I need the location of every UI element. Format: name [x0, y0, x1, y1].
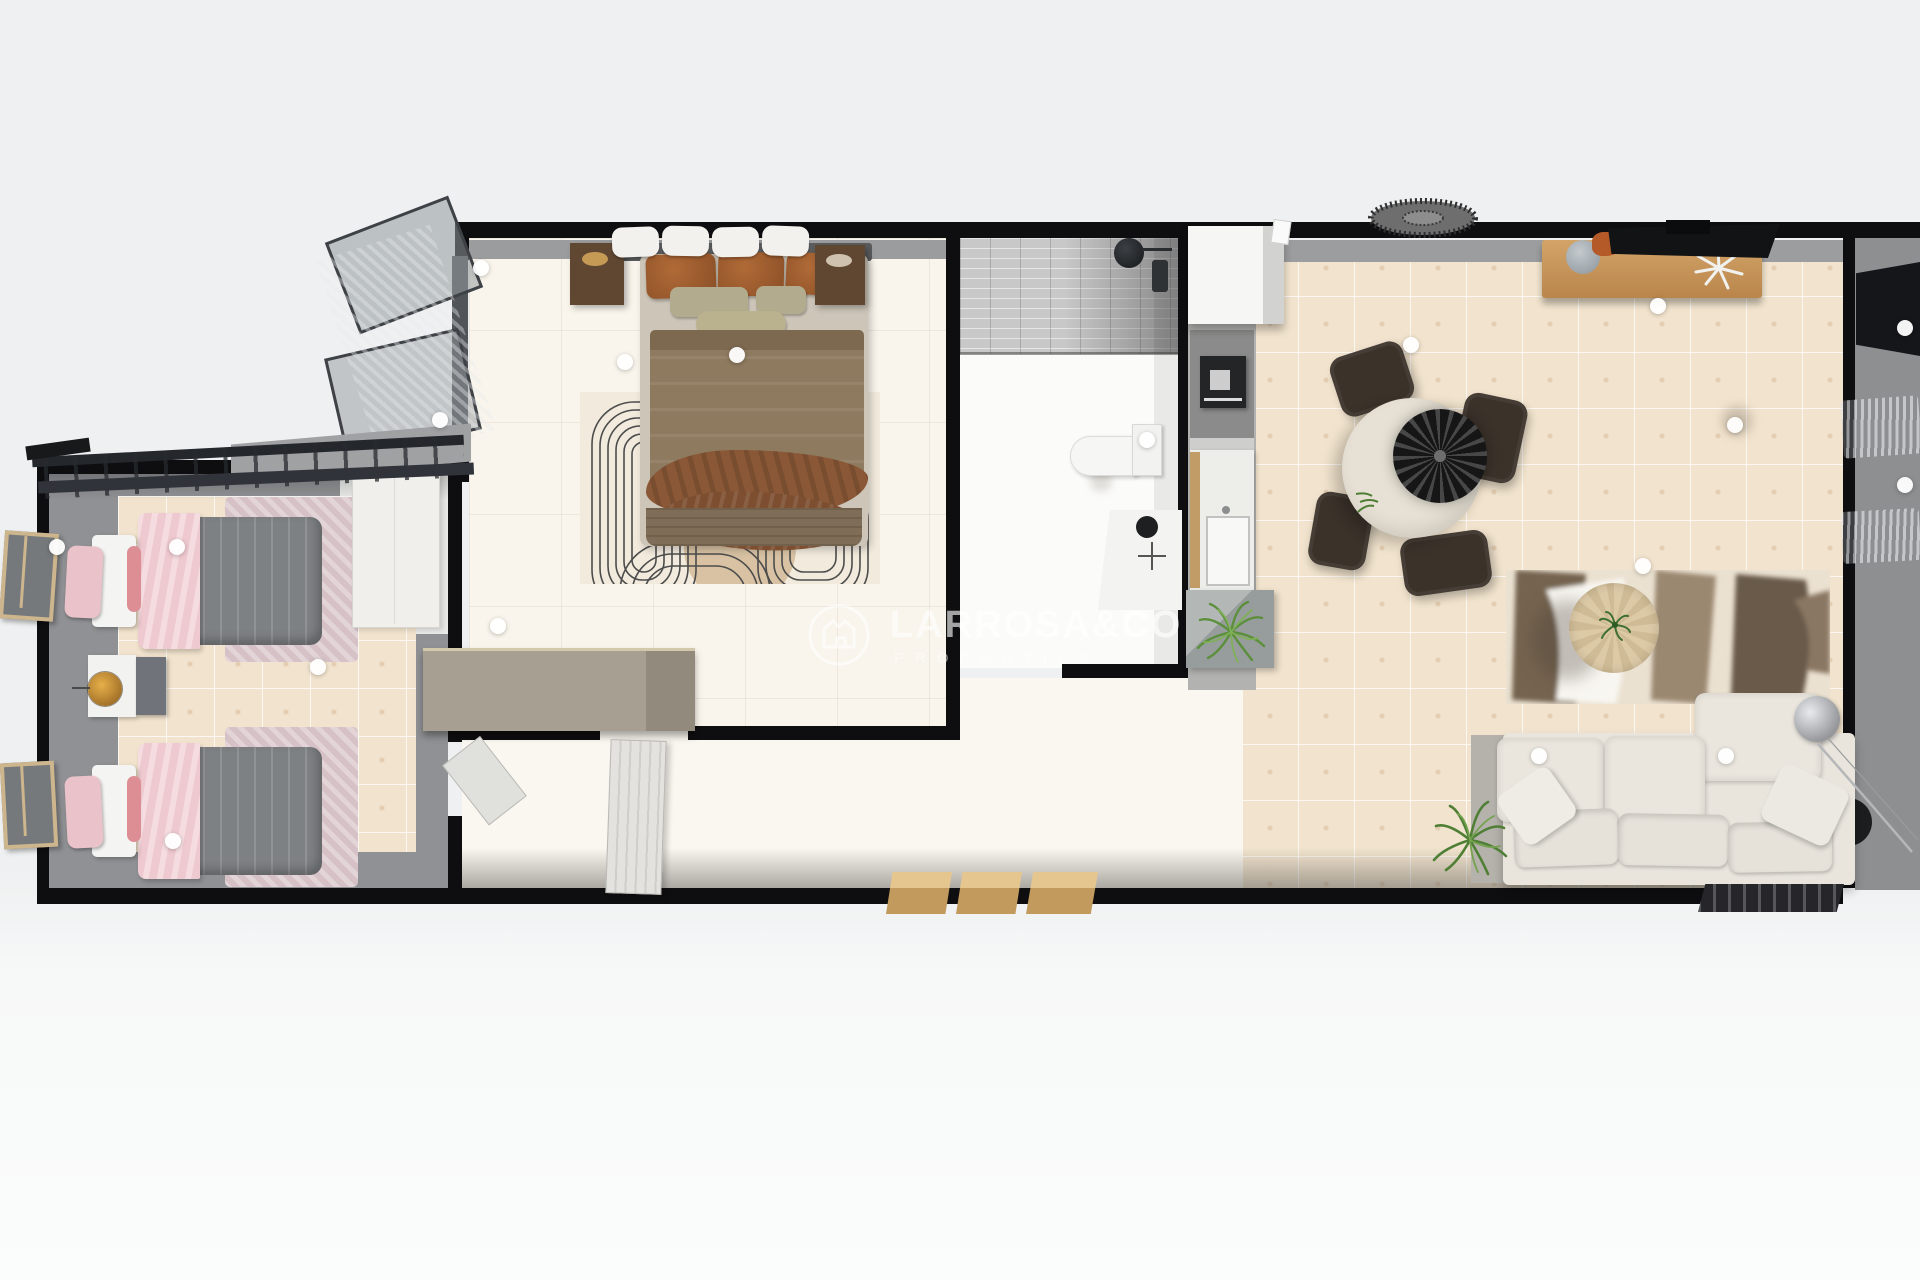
- tour-hotspot-dot[interactable]: [473, 260, 489, 276]
- rattan-pendant: [1367, 196, 1479, 240]
- tour-hotspot-dot[interactable]: [1718, 748, 1734, 764]
- watermark: LARROSA&CO PROPERTIES: [806, 600, 1266, 684]
- fridge-handle: [1270, 219, 1291, 245]
- shower-head-black: [1114, 238, 1144, 268]
- tour-hotspot-dot[interactable]: [310, 659, 326, 675]
- pergola-slats: [26, 430, 462, 502]
- tour-hotspot-dot[interactable]: [1897, 320, 1913, 336]
- tour-hotspot-dot[interactable]: [49, 539, 65, 555]
- nightstand-left-tray: [582, 252, 608, 266]
- tour-hotspot-dot[interactable]: [432, 412, 448, 428]
- coffee-table-plant: [1596, 606, 1634, 644]
- oven-handle-line: [1204, 398, 1242, 401]
- wall-twin-left-b: [37, 612, 49, 764]
- tour-hotspot-dot[interactable]: [1531, 748, 1547, 764]
- table-greenery: [1352, 486, 1392, 518]
- headboard-pillow-4: [761, 225, 809, 257]
- entrance-mat-2: [956, 872, 1022, 914]
- master-door-leaf: [605, 739, 666, 895]
- tour-hotspot-dot[interactable]: [490, 618, 506, 634]
- lamp-stem: [72, 687, 90, 689]
- table-lamp-gold: [88, 672, 122, 706]
- sofa-back-cushion-2: [1605, 736, 1705, 822]
- tour-hotspot-dot[interactable]: [169, 539, 185, 555]
- floorplan-render: LARROSA&CO PROPERTIES: [0, 0, 1920, 1280]
- pendant-center-cap: [1434, 450, 1446, 462]
- watermark-title: LARROSA&CO: [890, 604, 1182, 647]
- doormat-dark: [1698, 884, 1844, 912]
- right-window-curtain-2: [1841, 508, 1920, 564]
- vanity-sink-black: [1136, 516, 1158, 538]
- casement-window-2: [0, 761, 58, 850]
- watermark-logo-icon: [806, 602, 872, 668]
- headboard-pillow-3: [712, 227, 760, 258]
- dining-chair-4: [1398, 528, 1493, 598]
- twin-bed-2-pillow: [64, 775, 104, 849]
- headboard-pillow-2: [662, 226, 710, 257]
- tv-right-wall: [1856, 262, 1920, 356]
- wall-divider-twin-lower: [448, 816, 462, 888]
- tour-hotspot-dot[interactable]: [1635, 558, 1651, 574]
- twin-bed-2-blanket: [138, 743, 200, 879]
- tour-hotspot-dot[interactable]: [729, 347, 745, 363]
- twin-bed-1-pillow: [64, 545, 104, 619]
- twin-bed-1-bolster: [127, 546, 141, 612]
- shower-edge-line: [960, 352, 1178, 355]
- nightstand-right-tray: [826, 254, 852, 267]
- twin-bed-1-blanket: [138, 513, 200, 649]
- oven-inner-square: [1210, 370, 1230, 390]
- watermark-subtitle: PROPERTIES: [894, 650, 1100, 667]
- tour-hotspot-dot[interactable]: [1403, 337, 1419, 353]
- tour-hotspot-dot[interactable]: [165, 833, 181, 849]
- kitchen-faucet: [1222, 506, 1230, 514]
- tour-hotspot-dot[interactable]: [1897, 477, 1913, 493]
- entrance-mat-1: [886, 872, 952, 914]
- side-table-gray: [136, 657, 166, 715]
- kitchen-sink: [1206, 516, 1250, 586]
- sofa-seat-cushion-2: [1618, 813, 1729, 867]
- floor-plant: [1430, 794, 1510, 880]
- vanity-faucet-v: [1151, 542, 1153, 570]
- tour-hotspot-dot[interactable]: [1650, 298, 1666, 314]
- entrance-mat-3: [1026, 872, 1098, 914]
- toilet-bowl: [1070, 436, 1138, 476]
- tour-hotspot-dot[interactable]: [617, 354, 633, 370]
- wall-master-south-right: [688, 726, 955, 740]
- cutting-board-wood: [1190, 452, 1200, 588]
- headboard-pillow-1: [611, 226, 659, 258]
- floor-lamp-arm: [1808, 706, 1920, 856]
- tour-hotspot-dot[interactable]: [1139, 432, 1155, 448]
- right-window-curtain-1: [1840, 395, 1920, 458]
- dresser-taupe: [423, 648, 695, 731]
- shower-wall-mixer: [1152, 260, 1168, 292]
- bed-foot-fold: [646, 508, 862, 546]
- tv-bracket: [1666, 220, 1710, 234]
- shower-head-arm: [1142, 248, 1172, 251]
- twin-bed-2-bolster: [127, 776, 141, 842]
- bed-pillow-sage-2: [756, 286, 806, 314]
- tour-hotspot-dot[interactable]: [1727, 417, 1743, 433]
